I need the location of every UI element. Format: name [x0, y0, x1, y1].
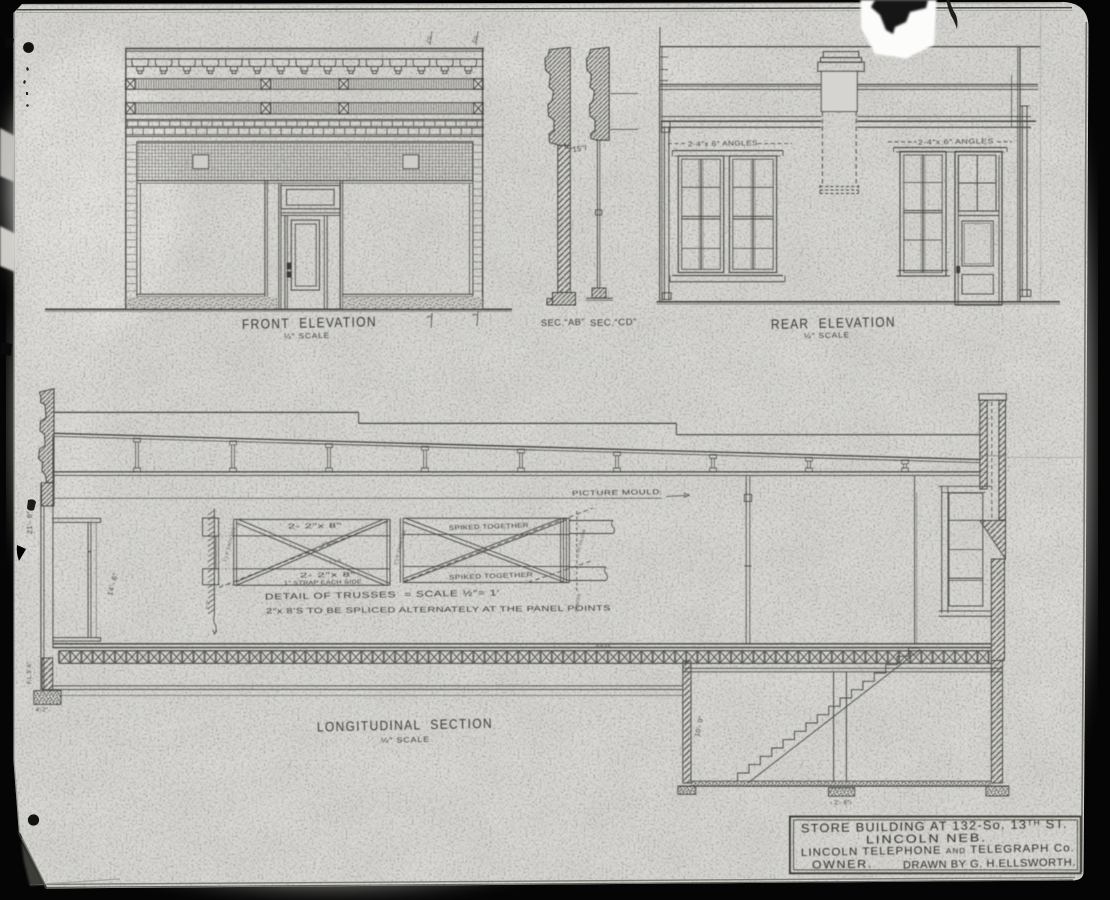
svg-text:REAR ELEVATION: REAR ELEVATION	[771, 314, 896, 332]
svg-text:2-4″x 6″ ANGLES: 2-4″x 6″ ANGLES	[918, 138, 994, 146]
svg-text:21'- 6″: 21'- 6″	[27, 511, 34, 534]
svg-text:FRONT ELEVATION: FRONT ELEVATION	[242, 314, 377, 332]
svg-text:OWNER.: OWNER.	[812, 858, 873, 871]
svg-text:SEC.“CD”: SEC.“CD”	[590, 317, 637, 328]
svg-text:¼″ SCALE: ¼″ SCALE	[381, 735, 430, 745]
svg-text:F.L.3'-6″: F.L.3'-6″	[27, 661, 33, 684]
svg-text:BASE: BASE	[596, 643, 612, 650]
svg-text:2- 2″x 8″: 2- 2″x 8″	[300, 572, 356, 580]
svg-text:4′-2″: 4′-2″	[36, 708, 48, 714]
svg-text:‹ 2′- 6″›: ‹ 2′- 6″›	[830, 801, 852, 807]
svg-text:2- 2″x 8″: 2- 2″x 8″	[288, 523, 342, 531]
svg-text:2-4″x 6″ ANGLES: 2-4″x 6″ ANGLES	[688, 140, 758, 148]
svg-text:¼″ SCALE: ¼″ SCALE	[284, 331, 330, 341]
svg-text:SEC.“AB”: SEC.“AB”	[541, 317, 585, 328]
svg-text:¼″ SCALE: ¼″ SCALE	[804, 330, 850, 340]
